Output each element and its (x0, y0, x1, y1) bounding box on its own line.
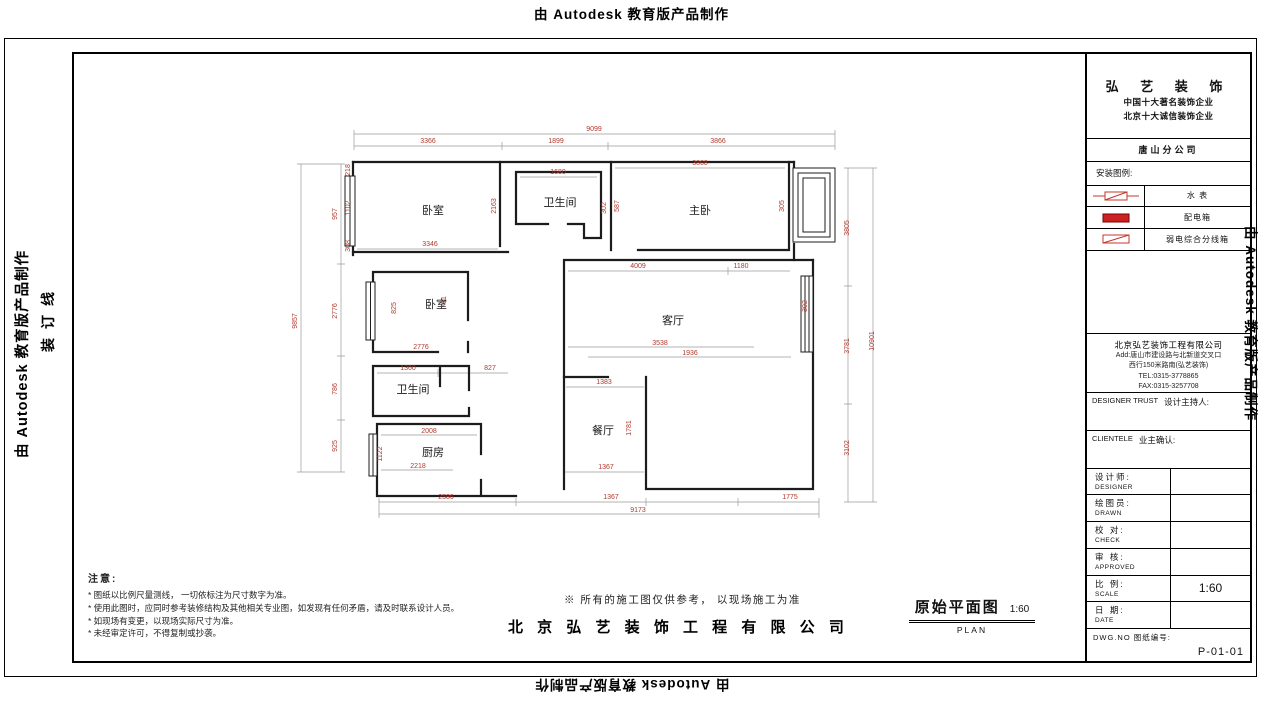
dimension-text: 302 (802, 300, 809, 312)
company-name: 北京弘艺装饰工程有限公司 (1087, 339, 1250, 351)
title-block-spacer (1087, 251, 1250, 334)
row-value (1171, 602, 1250, 628)
table-row-check: 校 对: CHECK (1087, 522, 1250, 549)
dimension-text: 2776 (413, 344, 429, 351)
dimension-text: 3781 (844, 338, 851, 354)
room-label: 客厅 (662, 313, 684, 327)
legend-row-water-meter: 水 表 (1087, 186, 1250, 208)
notes-block: 注意: * 图纸以比例尺量测线， 一切依标注为尺寸数字为准。 * 使用此图时，应… (88, 572, 538, 640)
table-row-date: 日 期: DATE (1087, 602, 1250, 629)
table-row-designer: 设计师: DESIGNER (1087, 469, 1250, 496)
table-row-scale: 比 例: SCALE 1:60 (1087, 576, 1250, 603)
clientele-en: CLIENTELE (1092, 434, 1133, 465)
dimension-text: 3346 (422, 241, 438, 248)
dimension-text: 1180 (733, 263, 748, 270)
brand-tagline-1: 中国十大著名装饰企业 (1087, 96, 1250, 109)
dimension-text: 2163 (491, 198, 498, 214)
room-label: 卫生间 (544, 195, 577, 209)
row-value (1171, 522, 1250, 548)
dimension-text: 4009 (630, 263, 646, 270)
drawing-title-text: 原始平面图 (915, 596, 1000, 617)
company-name-footer: 北 京 弘 艺 装 饰 工 程 有 限 公 司 (508, 616, 849, 637)
dimension-text: 781 (441, 296, 448, 308)
dimension-text: 308 (345, 240, 352, 252)
row-label-en: DATE (1095, 617, 1170, 624)
brand-logo-text: 弘 艺 装 饰 (1087, 76, 1250, 95)
brand-tagline-2: 北京十大诚信装饰企业 (1087, 110, 1250, 123)
row-label-cn: 审 核: (1095, 551, 1170, 563)
construction-disclaimer: ※ 所有的施工图仅供参考， 以现场施工为准 (564, 592, 801, 607)
dimension-text: 218 (345, 164, 352, 176)
dimension-text: 9173 (630, 507, 646, 514)
dimension-text: 925 (332, 440, 339, 452)
dimension-text: 827 (484, 365, 496, 372)
brand-box: 弘 艺 装 饰 中国十大著名装饰企业 北京十大诚信装饰企业 (1087, 54, 1250, 139)
company-addr-2: 西行150米路南(弘艺装饰) (1087, 361, 1250, 371)
dimension-text: 2586 (438, 494, 454, 501)
dimension-text: 2776 (332, 303, 339, 319)
designer-host-row: DESIGNER TRUST 设计主持人: (1087, 393, 1250, 431)
dimension-text: 1383 (596, 379, 612, 386)
row-label-en: SCALE (1095, 591, 1170, 598)
dimension-text: 1899 (548, 138, 564, 145)
dimension-text: 3102 (844, 440, 851, 456)
autodesk-watermark-right: 由 Autodesk 教育版产品制作 (1242, 226, 1262, 421)
dimension-text: 3866 (710, 138, 726, 145)
drawing-title-block: 原始平面图 1:60 PLAN (886, 596, 1058, 635)
dwg-label: DWG.NO 图纸编号: (1093, 632, 1244, 643)
legend-title: 安装图例: (1087, 162, 1250, 186)
row-label-cn: 校 对: (1095, 524, 1170, 536)
autodesk-watermark-top: 由 Autodesk 教育版产品制作 (534, 3, 729, 23)
row-value (1171, 549, 1250, 575)
dimension-text: 1102 (345, 200, 352, 215)
room-label: 主卧 (689, 204, 711, 217)
dimension-text: 305 (779, 200, 786, 212)
dimension-text: 1936 (682, 350, 698, 357)
dimension-text: 786 (332, 383, 339, 395)
note-line: * 未经审定许可，不得复制或抄袭。 (88, 627, 538, 640)
water-meter-icon (1087, 186, 1145, 207)
row-label-cn: 日 期: (1095, 604, 1170, 616)
dimension-text: 3868 (692, 160, 708, 167)
dimension-text: 2218 (410, 463, 426, 470)
dimension-text: 1775 (782, 494, 798, 501)
dimension-text: 3538 (652, 340, 668, 347)
dwg-number-box: DWG.NO 图纸编号: P-01-01 (1087, 629, 1250, 661)
dimension-text: 9857 (292, 313, 299, 329)
dimension-text: 957 (332, 208, 339, 220)
designer-host-cn: 设计主持人: (1164, 396, 1209, 427)
title-block: 弘 艺 装 饰 中国十大著名装饰企业 北京十大诚信装饰企业 唐山分公司 安装图例… (1085, 54, 1250, 661)
row-label-cn: 比 例: (1095, 578, 1170, 590)
room-label: 厨房 (422, 446, 444, 459)
dimension-text: 1367 (603, 494, 619, 501)
dimension-text: 1781 (626, 420, 633, 436)
dimension-text: 3366 (420, 138, 436, 145)
row-label-en: APPROVED (1095, 564, 1170, 571)
legend-label: 弱电综合分线箱 (1145, 229, 1250, 250)
room-label: 卧室 (422, 203, 444, 217)
clientele-cn: 业主确认: (1139, 434, 1175, 465)
windows (345, 168, 835, 476)
note-line: * 如现场有变更，以现场实际尺寸为准。 (88, 615, 538, 628)
dimension-text: 9099 (586, 126, 602, 133)
dimension-text: 2008 (421, 428, 437, 435)
row-label-cn: 设计师: (1095, 471, 1170, 483)
dimension-text: 1360 (400, 365, 416, 372)
drawing-title-en: PLAN (886, 625, 1058, 635)
company-addr-1: Add:唐山市建设路与北新道交叉口 (1087, 351, 1250, 361)
legend-row-power-box: 配电箱 (1087, 207, 1250, 229)
floor-plan-canvas: 卧室卫生间主卧卧室客厅卫生间厨房餐厅9099336618993866985795… (78, 56, 1083, 659)
note-line: * 使用此图时，应同时参考装修结构及其他相关专业图，如发现有任何矛盾，请及时联系… (88, 602, 538, 615)
company-info: 北京弘艺装饰工程有限公司 Add:唐山市建设路与北新道交叉口 西行150米路南(… (1087, 334, 1250, 393)
autodesk-watermark-bottom: 由 Autodesk 教育版产品制作 (534, 676, 729, 696)
dimension-text: 302 (601, 202, 608, 214)
dimension-text: 1680 (550, 169, 566, 176)
scale-value: 1:60 (1171, 576, 1250, 602)
weak-current-box-icon (1087, 229, 1145, 250)
dimension-text: 825 (391, 302, 398, 314)
designer-host-en: DESIGNER TRUST (1092, 396, 1158, 427)
row-value (1171, 469, 1250, 495)
drawing-scale-text: 1:60 (1010, 604, 1029, 615)
branch-name: 唐山分公司 (1087, 139, 1250, 162)
company-tel: TEL:0315-3778865 (1087, 372, 1250, 382)
room-label: 餐厅 (592, 423, 614, 437)
dwg-number: P-01-01 (1093, 646, 1244, 658)
dimension-text: 1122 (377, 446, 384, 461)
dimension-text: 10901 (869, 331, 876, 351)
dimension-text: 3805 (844, 220, 851, 236)
power-distribution-box-icon (1087, 207, 1145, 228)
row-label-en: DRAWN (1095, 510, 1170, 517)
row-value (1171, 495, 1250, 521)
dimension-text: 587 (614, 200, 621, 212)
row-label-en: CHECK (1095, 537, 1170, 544)
legend-label: 水 表 (1145, 186, 1250, 207)
row-label-cn: 绘图员: (1095, 497, 1170, 509)
row-label-en: DESIGNER (1095, 484, 1170, 491)
company-fax: FAX:0315-3257708 (1087, 382, 1250, 392)
table-row-approved: 审 核: APPROVED (1087, 549, 1250, 576)
notes-title: 注意: (88, 572, 538, 587)
legend-row-weak-current: 弱电综合分线箱 (1087, 229, 1250, 251)
table-row-drawn: 绘图员: DRAWN (1087, 495, 1250, 522)
dimension-text: 1367 (598, 464, 614, 471)
room-label: 卫生间 (397, 382, 430, 396)
drawing-frame: 卧室卫生间主卧卧室客厅卫生间厨房餐厅9099336618993866985795… (72, 52, 1252, 663)
legend-label: 配电箱 (1145, 207, 1250, 228)
note-line: * 图纸以比例尺量测线， 一切依标注为尺寸数字为准。 (88, 589, 538, 602)
clientele-row: CLIENTELE 业主确认: (1087, 431, 1250, 469)
